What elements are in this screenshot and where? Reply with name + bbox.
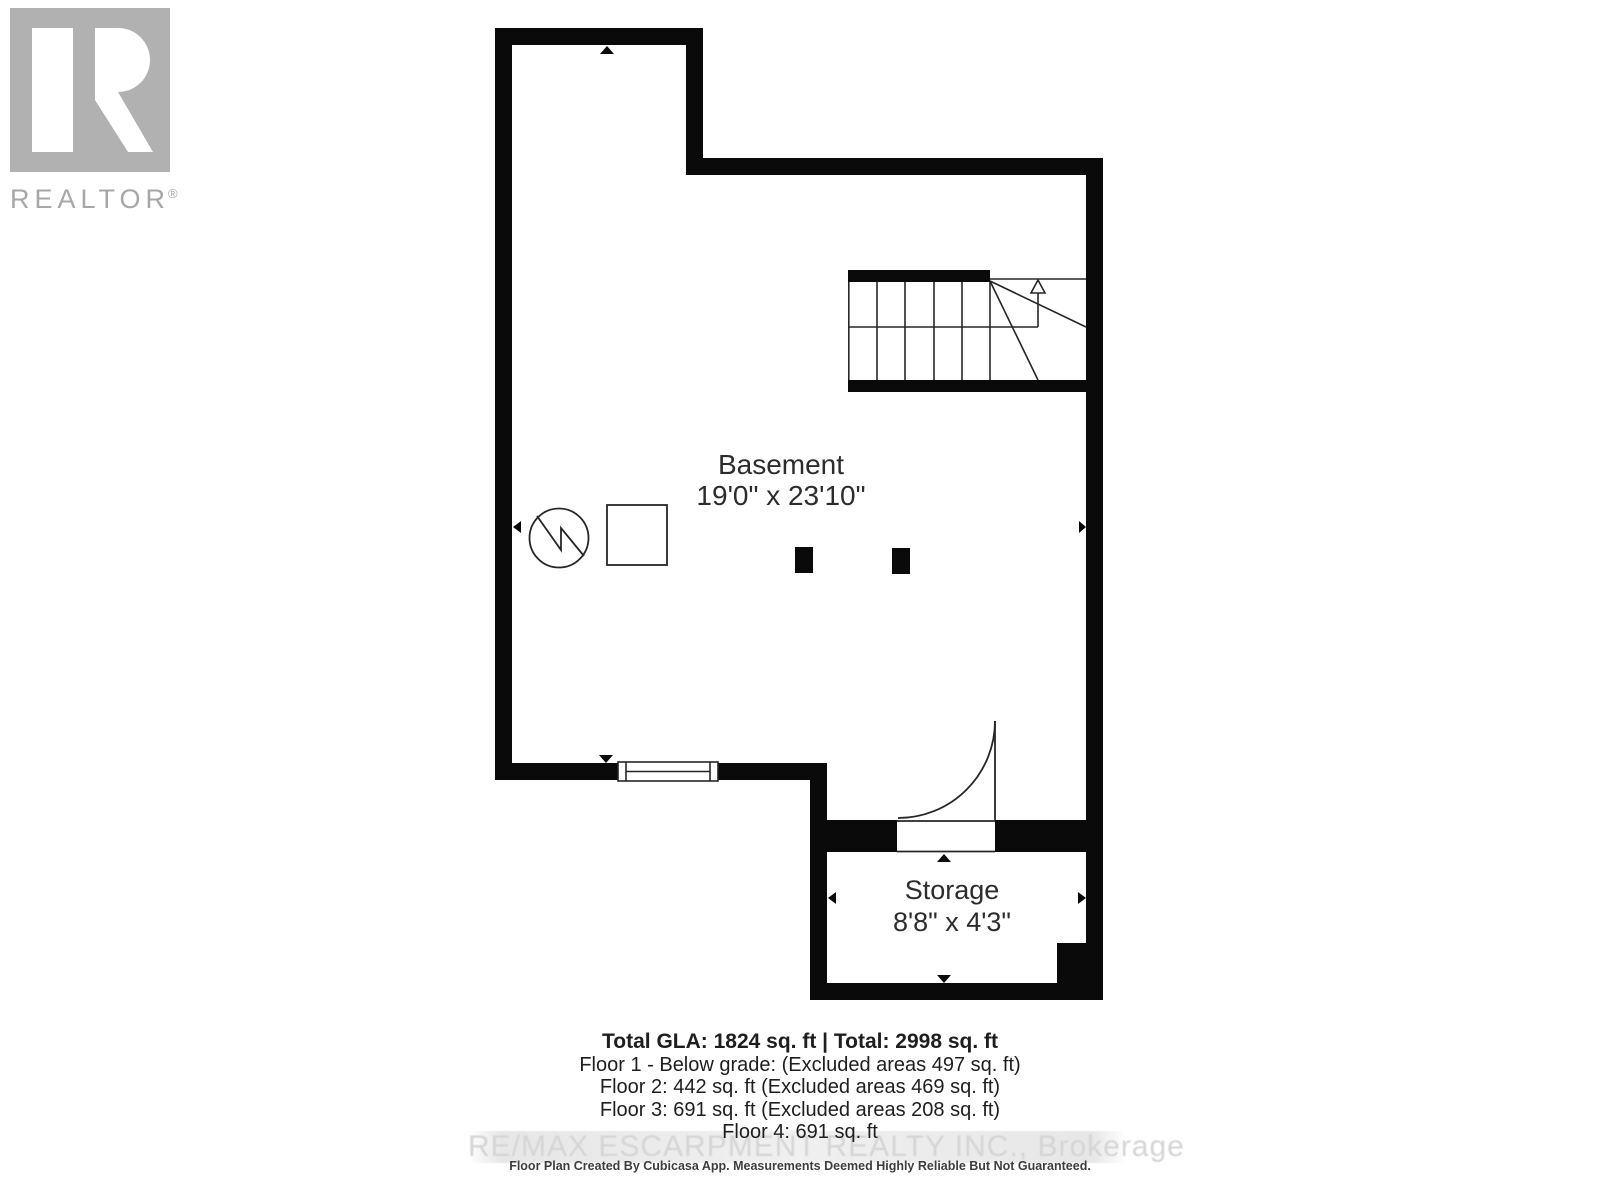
storage-dimensions: 8'8" x 4'3" <box>893 907 1011 937</box>
basement-label: Basement <box>718 449 844 480</box>
wall-storage-top-right <box>995 820 1103 852</box>
realtor-logo: REALTOR® <box>10 8 178 215</box>
wall-storage-top-left <box>827 820 897 852</box>
storage-width-arrow-right-icon <box>1078 892 1086 904</box>
basement-height-arrow-bottom-icon <box>599 755 613 763</box>
storage-door <box>897 721 995 852</box>
stairs-up-arrow-icon <box>1031 280 1045 293</box>
wall-storage-left <box>810 763 827 1000</box>
floor-1-line: Floor 1 - Below grade: (Excluded areas 4… <box>0 1054 1600 1076</box>
basement-width-arrow-left-icon <box>513 521 521 533</box>
storage-height-arrow-top-icon <box>937 854 951 862</box>
wall-left <box>495 28 512 780</box>
disclaimer-text: Floor Plan Created By Cubicasa App. Meas… <box>0 1159 1600 1173</box>
storage-height-arrow-bottom-icon <box>937 975 951 983</box>
storage-label: Storage <box>905 875 1000 905</box>
area-summary: Total GLA: 1824 sq. ft | Total: 2998 sq.… <box>0 1029 1600 1144</box>
utility-symbols <box>530 505 911 574</box>
floor-3-line: Floor 3: 691 sq. ft (Excluded areas 208 … <box>0 1099 1600 1121</box>
realtor-logo-icon <box>10 8 170 172</box>
stairs-bottom-wall <box>848 380 1086 392</box>
wall-storage-corner-notch <box>1057 943 1103 1000</box>
realtor-wordmark-text: REALTOR <box>10 184 170 214</box>
realtor-wordmark: REALTOR® <box>10 184 178 215</box>
window <box>618 762 718 781</box>
wall-top <box>495 28 703 45</box>
basement-dimensions: 19'0" x 23'10" <box>696 480 865 511</box>
water-tank-icon <box>607 505 667 565</box>
stairs-winder-diagonal-2 <box>990 281 1038 380</box>
wall-step-horizontal <box>686 158 1103 175</box>
basement-height-arrow-top-icon <box>600 46 614 54</box>
wall-step-vertical <box>686 28 703 175</box>
support-post-left <box>795 547 813 573</box>
total-gla-line: Total GLA: 1824 sq. ft | Total: 2998 sq.… <box>0 1029 1600 1054</box>
support-post-right <box>892 548 910 574</box>
staircase <box>848 270 1086 392</box>
walls <box>495 28 1103 1000</box>
floor-4-line: Floor 4: 691 sq. ft <box>0 1121 1600 1143</box>
stair-treads <box>848 279 1086 380</box>
registered-trademark-icon: ® <box>168 186 178 201</box>
floor-plan-drawing: Basement 19'0" x 23'10" Storage 8'8" x 4… <box>0 0 1600 1200</box>
wall-right <box>1086 158 1103 1000</box>
realtor-r-stem <box>32 28 73 152</box>
floor-2-line: Floor 2: 442 sq. ft (Excluded areas 469 … <box>0 1076 1600 1098</box>
door-swing-arc <box>898 721 995 818</box>
floor-plan-page: REALTOR® <box>0 0 1600 1200</box>
storage-width-arrow-left-icon <box>828 892 836 904</box>
stairs-top-wall <box>848 270 990 282</box>
basement-width-arrow-right-icon <box>1079 521 1086 533</box>
